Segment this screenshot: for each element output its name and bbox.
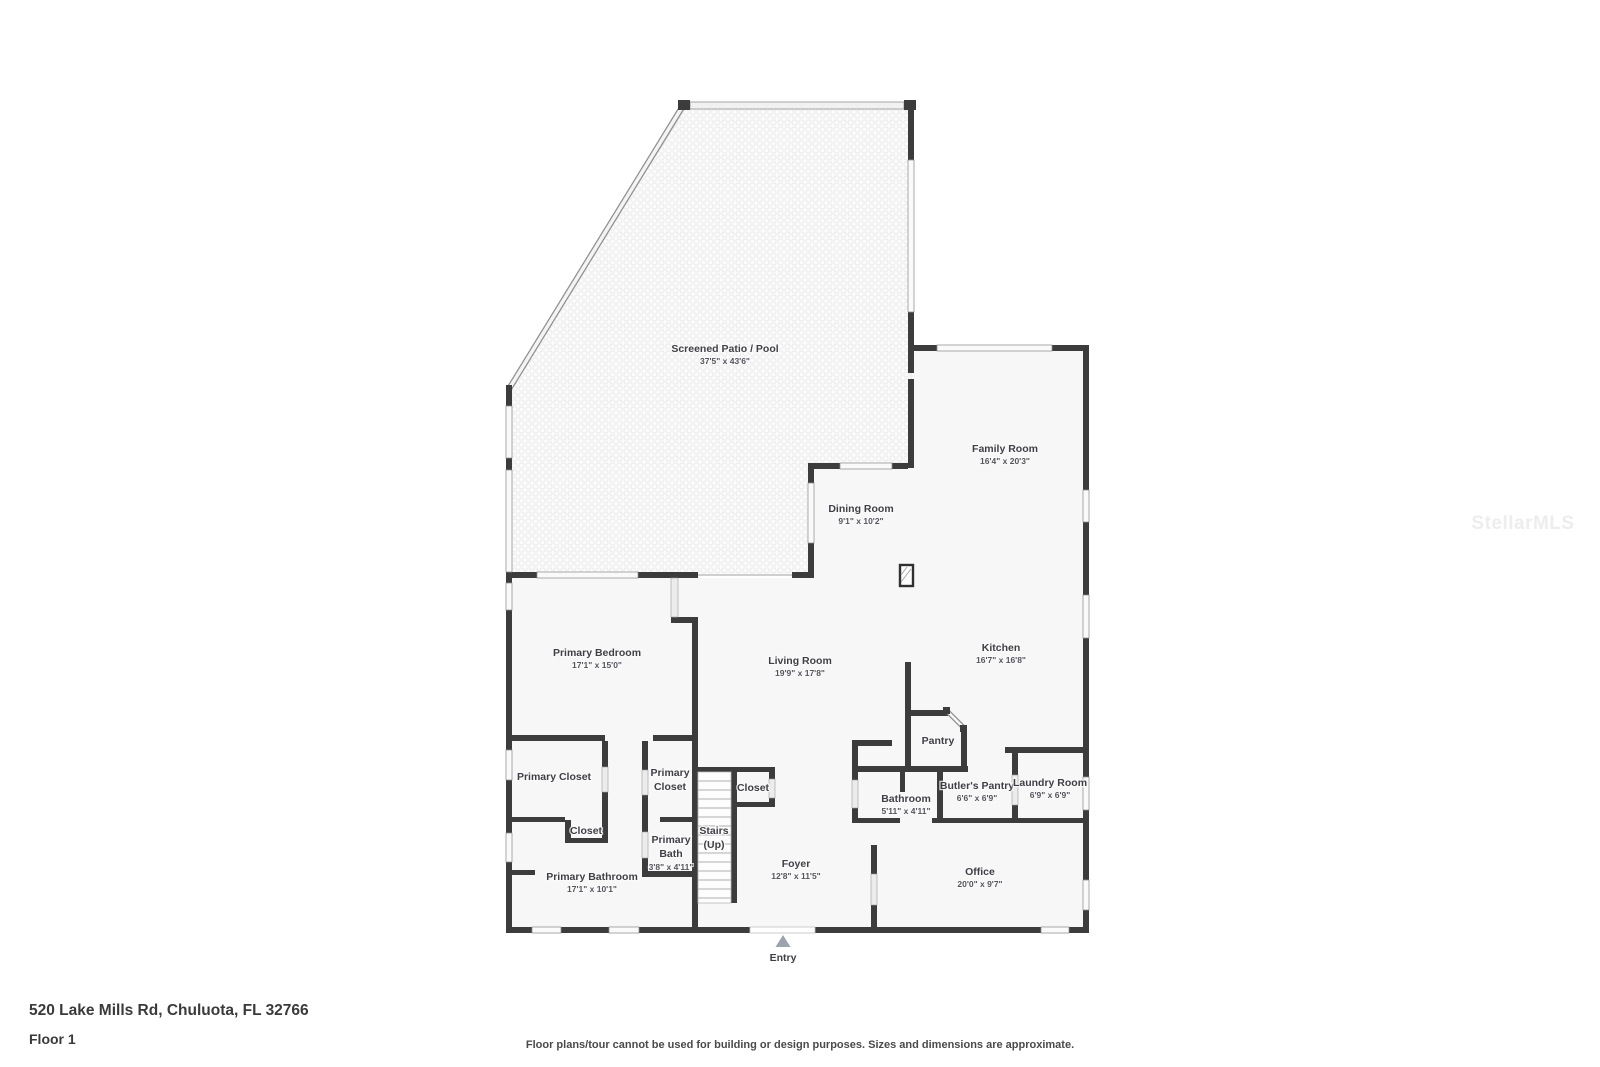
room-label-closet-nook: Closet	[570, 825, 603, 837]
room-label-kitchen: Kitchen	[982, 642, 1021, 654]
room-label-primary-closet: Primary Closet	[517, 771, 592, 783]
room-label-dining-room: Dining Room	[828, 503, 893, 515]
entry-marker-icon	[776, 935, 791, 947]
room-label-family-room: Family Room	[972, 443, 1038, 455]
room-dims-bathroom: 5'11" x 4'11"	[882, 806, 931, 816]
room-label-closet-hall: Closet	[737, 782, 770, 794]
room-dims-butlers-pantry: 6'6" x 6'9"	[957, 793, 997, 803]
room-label-pantry: Pantry	[922, 735, 955, 747]
room-dims-dining-room: 9'1" x 10'2"	[838, 516, 883, 526]
room-label-primary-closet-2-line1: Primary	[650, 767, 689, 779]
room-label-office: Office	[965, 866, 995, 878]
entry-label: Entry	[770, 952, 797, 964]
room-dims-family-room: 16'4" x 20'3"	[980, 456, 1030, 466]
room-label-bathroom: Bathroom	[881, 793, 931, 805]
floor-plan: Screened Patio / Pool 37'5" x 43'6" Fami…	[0, 0, 1600, 1067]
room-label-primary-closet-2-line2: Closet	[654, 781, 687, 793]
room-label-stairs-line1: Stairs	[699, 825, 728, 837]
room-dims-office: 20'0" x 9'7"	[957, 879, 1002, 889]
address-text: 520 Lake Mills Rd, Chuluota, FL 32766	[29, 1002, 309, 1020]
fireplace	[900, 565, 913, 586]
room-dims-primary-bath: 3'8" x 4'11"	[649, 862, 694, 872]
room-dims-primary-bedroom: 17'1" x 15'0"	[572, 660, 622, 670]
disclaimer-text: Floor plans/tour cannot be used for buil…	[0, 1039, 1600, 1051]
floor-plan-page: Screened Patio / Pool 37'5" x 43'6" Fami…	[0, 0, 1600, 1067]
room-dims-kitchen: 16'7" x 16'8"	[976, 655, 1026, 665]
stairs	[698, 772, 731, 903]
room-dims-foyer: 12'8" x 11'5"	[771, 871, 820, 881]
room-label-foyer: Foyer	[782, 858, 811, 870]
watermark: StellarMLS	[1471, 513, 1574, 534]
room-dims-screened-patio: 37'5" x 43'6"	[700, 356, 750, 366]
room-label-living-room: Living Room	[768, 655, 832, 667]
room-label-laundry-room: Laundry Room	[1013, 777, 1087, 789]
room-label-primary-bedroom: Primary Bedroom	[553, 647, 641, 659]
room-dims-primary-bathroom: 17'1" x 10'1"	[567, 884, 617, 894]
room-label-primary-bath-line2: Bath	[659, 848, 682, 860]
room-dims-living-room: 19'9" x 17'8"	[775, 668, 825, 678]
room-label-screened-patio: Screened Patio / Pool	[671, 343, 778, 355]
room-label-butlers-pantry: Butler's Pantry	[940, 780, 1014, 792]
room-dims-laundry-room: 6'9" x 6'9"	[1030, 790, 1070, 800]
room-label-stairs-line2: (Up)	[704, 839, 725, 851]
room-label-primary-bathroom: Primary Bathroom	[546, 871, 638, 883]
room-label-primary-bath-line1: Primary	[651, 834, 690, 846]
